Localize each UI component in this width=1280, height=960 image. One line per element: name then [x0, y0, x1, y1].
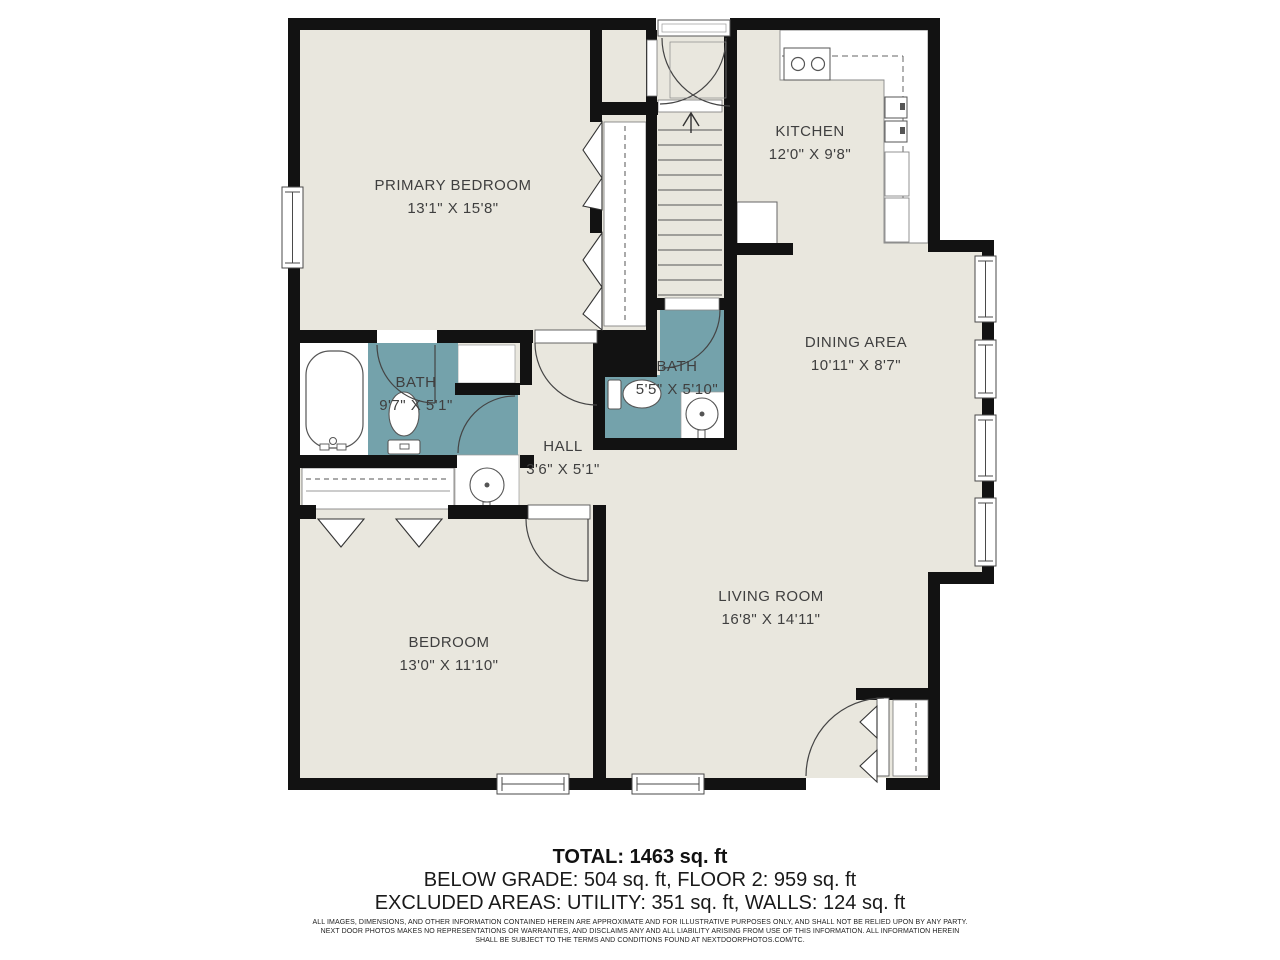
living-closet	[893, 700, 928, 776]
bath1-threshold	[377, 330, 437, 343]
room-label-living-room: LIVING ROOM 16'8" X 14'11"	[718, 585, 824, 631]
window	[632, 774, 704, 794]
stove-icon	[784, 48, 830, 80]
bedroom-door-leaf	[528, 505, 590, 519]
refrigerator-icon	[737, 202, 777, 250]
living-door-leaf	[877, 698, 889, 776]
excluded-areas-text: EXCLUDED AREAS: UTILITY: 351 sq. ft, WAL…	[0, 892, 1280, 915]
window	[497, 774, 569, 794]
stair-landing	[658, 100, 722, 112]
room-label-dining-area: DINING AREA 10'11" X 8'7"	[805, 331, 907, 377]
room-label-bath2: BATH 5'5" X 5'10"	[636, 355, 718, 401]
below-grade-text: BELOW GRADE: 504 sq. ft, FLOOR 2: 959 sq…	[0, 869, 1280, 892]
bathtub-icon	[306, 351, 363, 450]
disclaimer-text: ALL IMAGES, DIMENSIONS, AND OTHER INFORM…	[0, 918, 1280, 945]
primary-closet	[604, 122, 646, 326]
bedroom-closet	[302, 468, 454, 509]
floor-plan-page: PRIMARY BEDROOM 13'1" X 15'8" KITCHEN 12…	[0, 0, 1280, 960]
total-area-text: TOTAL: 1463 sq. ft	[0, 845, 1280, 869]
primary-door-leaf	[535, 330, 597, 343]
bath2-threshold	[665, 298, 719, 310]
room-label-hall: HALL 3'6" X 5'1"	[526, 435, 600, 481]
room-label-bedroom: BEDROOM 13'0" X 11'10"	[400, 631, 499, 677]
window	[975, 498, 996, 566]
window	[282, 187, 303, 268]
window	[975, 256, 996, 322]
area-summary: TOTAL: 1463 sq. ft BELOW GRADE: 504 sq. …	[0, 845, 1280, 945]
room-label-kitchen: KITCHEN 12'0" X 9'8"	[769, 120, 851, 166]
entry-threshold	[658, 20, 730, 36]
floor-plan	[0, 0, 1280, 960]
window	[975, 340, 996, 398]
closet-door-gap	[647, 40, 657, 96]
window	[975, 415, 996, 481]
room-label-bath1: BATH 9'7" X 5'1"	[379, 371, 453, 417]
linen-closet	[458, 345, 515, 383]
room-label-primary-bedroom: PRIMARY BEDROOM 13'1" X 15'8"	[375, 174, 532, 220]
